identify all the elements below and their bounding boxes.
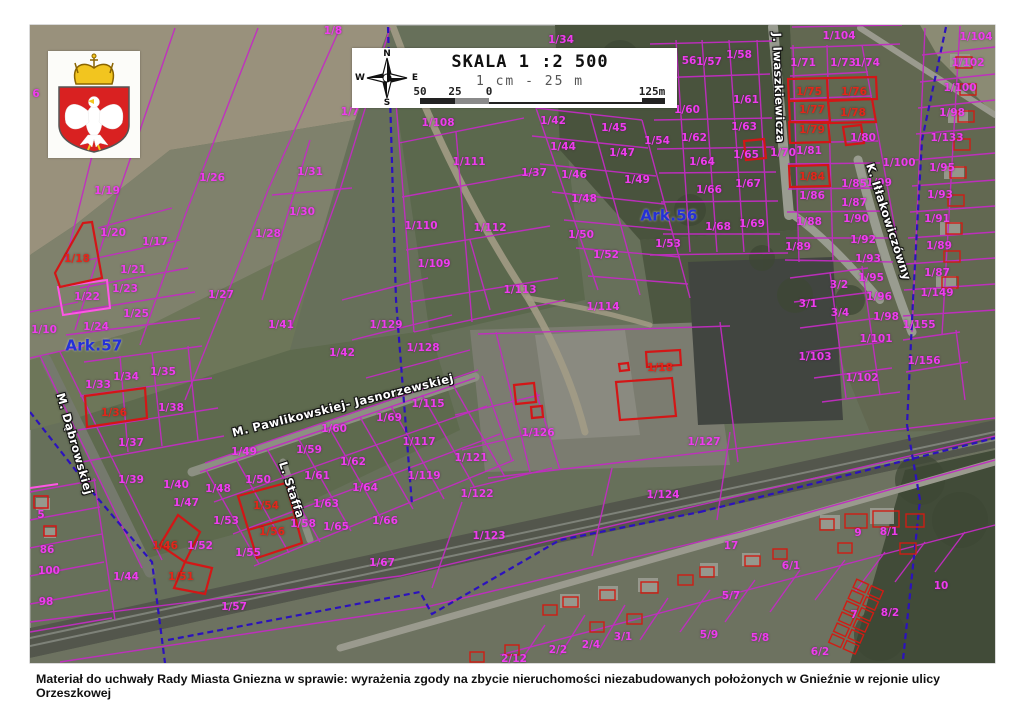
compass-west-label: W <box>355 73 365 83</box>
compass-north-label: N <box>383 49 391 59</box>
scale-bar-label: 125m <box>639 85 666 98</box>
compass-south-label: S <box>384 98 390 108</box>
scale-bar-label: 25 <box>448 85 461 98</box>
gniezno-coat-of-arms <box>48 51 140 158</box>
compass-east-label: E <box>412 73 418 83</box>
map-graphics <box>0 0 1024 725</box>
scale-bar-label: 0 <box>486 85 493 98</box>
caption: Materiał do uchwały Rady Miasta Gniezna … <box>36 672 996 700</box>
scale-bar-label: 50 <box>413 85 426 98</box>
eagle-icon <box>48 51 140 158</box>
scale-title: SKALA 1 :2 500 <box>451 52 608 72</box>
page: 1/861/71/191/261/311/301/281/171/201/181… <box>0 0 1024 725</box>
scale-bar <box>420 98 665 104</box>
compass-rose-icon <box>364 55 410 101</box>
scale-box: N W E S SKALA 1 :2 500 1 cm - 25 m 50250… <box>352 48 677 108</box>
